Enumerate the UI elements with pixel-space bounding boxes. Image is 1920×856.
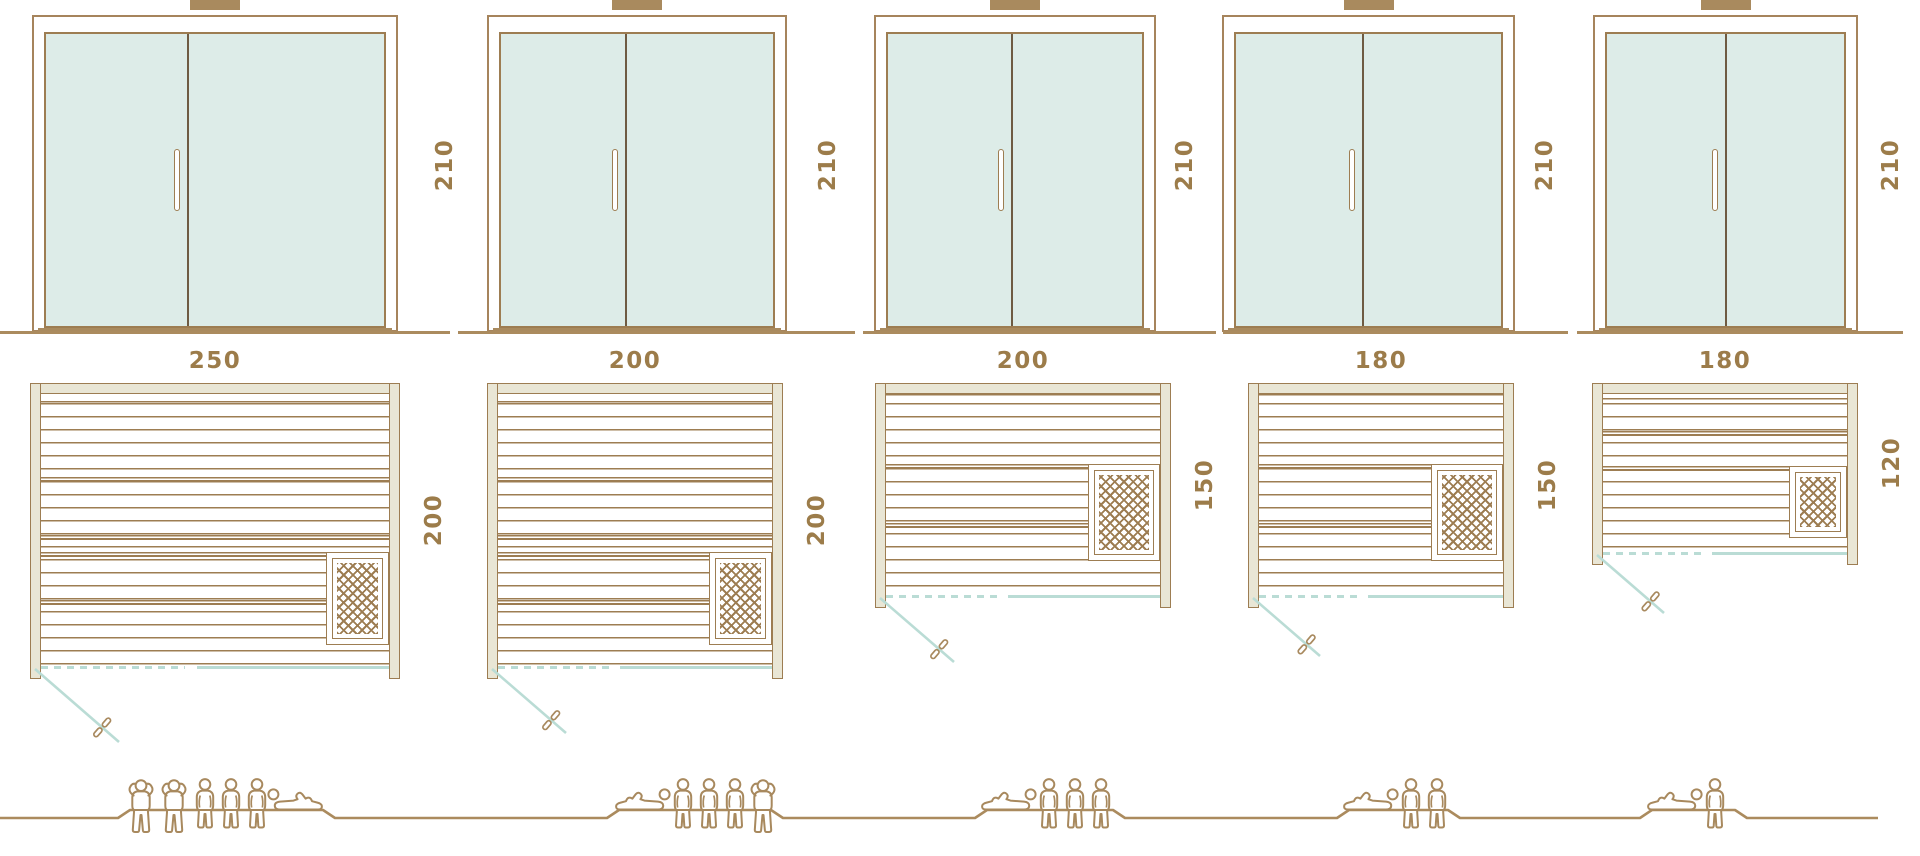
door-frame bbox=[874, 15, 1156, 332]
door-swing-line bbox=[35, 669, 119, 742]
plan-wall-left bbox=[875, 383, 886, 608]
person-sitting-icon bbox=[1707, 779, 1723, 827]
door-swing-line bbox=[1253, 598, 1320, 656]
person-standing-icon bbox=[163, 780, 186, 832]
plan-depth-label: 120 bbox=[1877, 413, 1907, 513]
bench-edge-line bbox=[41, 535, 389, 540]
capacity-ground-line bbox=[0, 810, 1878, 818]
person-sitting-icon bbox=[1041, 779, 1057, 827]
plan-width-label: 250 bbox=[165, 346, 265, 376]
door-handle bbox=[612, 149, 618, 211]
door-height-label: 210 bbox=[430, 115, 460, 215]
ground-line bbox=[1577, 331, 1903, 334]
door-glass bbox=[886, 32, 1144, 328]
ground-line bbox=[1223, 331, 1568, 334]
door-handle bbox=[1712, 149, 1718, 211]
plan-wall-top bbox=[1248, 383, 1514, 394]
person-sitting-icon bbox=[675, 779, 691, 827]
plan-wall-left bbox=[30, 383, 41, 679]
person-sitting-icon bbox=[1093, 779, 1109, 827]
plan-wall-left bbox=[1248, 383, 1259, 608]
plan-wall-right bbox=[1503, 383, 1514, 608]
ground-line bbox=[0, 331, 450, 334]
door-height-label: 210 bbox=[1530, 115, 1560, 215]
plan-width-label: 180 bbox=[1331, 346, 1431, 376]
floor-plan bbox=[30, 383, 400, 669]
heater bbox=[1789, 466, 1847, 538]
door-swing bbox=[869, 594, 1039, 714]
person-sitting-icon bbox=[1067, 779, 1083, 827]
door-height-label: 210 bbox=[1170, 115, 1200, 215]
person-sitting-icon bbox=[249, 779, 265, 827]
bench-edge-line bbox=[498, 477, 772, 482]
door-elevation bbox=[1222, 15, 1515, 332]
roof-vent bbox=[1344, 0, 1394, 10]
heater-frame bbox=[1795, 472, 1841, 532]
door-swing bbox=[1586, 551, 1756, 671]
door-swing-line bbox=[1597, 555, 1664, 613]
door-frame bbox=[487, 15, 787, 332]
bench-edge-line bbox=[498, 535, 772, 540]
ground-line bbox=[458, 331, 855, 334]
door-handle bbox=[174, 149, 180, 211]
roof-vent bbox=[612, 0, 662, 10]
heater bbox=[326, 552, 389, 645]
door-glass bbox=[44, 32, 386, 328]
plan-width-label: 200 bbox=[585, 346, 685, 376]
heater bbox=[1088, 464, 1160, 561]
heater-frame bbox=[1094, 470, 1154, 555]
plan-wall-top bbox=[875, 383, 1171, 394]
ground-line bbox=[863, 331, 1216, 334]
person-lying-icon bbox=[1648, 789, 1701, 809]
plan-wall-left bbox=[487, 383, 498, 679]
person-sitting-icon bbox=[1403, 779, 1419, 827]
plan-width-label: 180 bbox=[1675, 346, 1775, 376]
door-frame bbox=[32, 15, 398, 332]
capacity-figures bbox=[0, 756, 1920, 856]
person-lying-icon bbox=[616, 789, 669, 809]
door-swing-line bbox=[880, 598, 954, 662]
heater bbox=[1431, 464, 1503, 561]
door-glass bbox=[499, 32, 775, 328]
roof-vent bbox=[1701, 0, 1751, 10]
bench-edge-line bbox=[41, 477, 389, 482]
person-sitting-icon bbox=[1429, 779, 1445, 827]
plan-depth-label: 200 bbox=[802, 470, 832, 570]
heater bbox=[709, 552, 772, 645]
plan-wall-top bbox=[30, 383, 400, 394]
heater-frame bbox=[332, 558, 383, 639]
person-lying-icon bbox=[982, 789, 1035, 809]
plan-wall-left bbox=[1592, 383, 1603, 565]
person-sitting-icon bbox=[701, 779, 717, 827]
floor-plan bbox=[1592, 383, 1858, 555]
heater-frame bbox=[1437, 470, 1497, 555]
plan-wall-top bbox=[487, 383, 783, 394]
door-handle bbox=[998, 149, 1004, 211]
floor-plan bbox=[875, 383, 1171, 598]
door-divider bbox=[625, 34, 627, 326]
door-glass bbox=[1605, 32, 1846, 328]
person-sitting-icon bbox=[223, 779, 239, 827]
plan-wall-right bbox=[1847, 383, 1858, 565]
person-lying-icon bbox=[1344, 789, 1397, 809]
person-standing-icon bbox=[752, 780, 775, 832]
door-divider bbox=[1362, 34, 1364, 326]
plan-depth-label: 150 bbox=[1533, 435, 1563, 535]
heater-mesh bbox=[1800, 477, 1836, 527]
plan-wall-right bbox=[1160, 383, 1171, 608]
heater-mesh bbox=[720, 563, 761, 634]
person-lying-icon bbox=[268, 789, 321, 809]
heater-frame bbox=[715, 558, 766, 639]
heater-mesh bbox=[337, 563, 378, 634]
bench-edge-line bbox=[1603, 431, 1847, 436]
plan-depth-label: 200 bbox=[419, 470, 449, 570]
plan-wall-top bbox=[1592, 383, 1858, 394]
roof-vent bbox=[990, 0, 1040, 10]
plan-wall-right bbox=[389, 383, 400, 679]
door-divider bbox=[1011, 34, 1013, 326]
door-divider bbox=[1725, 34, 1727, 326]
door-elevation bbox=[487, 15, 787, 332]
glass-wall-line bbox=[197, 666, 389, 669]
door-divider bbox=[187, 34, 189, 326]
heater-mesh bbox=[1442, 475, 1492, 550]
plan-depth-label: 150 bbox=[1190, 435, 1220, 535]
plan-width-label: 200 bbox=[973, 346, 1073, 376]
door-height-label: 210 bbox=[1876, 115, 1906, 215]
floor-plan bbox=[1248, 383, 1514, 598]
door-elevation bbox=[32, 15, 398, 332]
door-frame bbox=[1593, 15, 1858, 332]
door-handle bbox=[1349, 149, 1355, 211]
door-glass bbox=[1234, 32, 1503, 328]
door-height-label: 210 bbox=[813, 115, 843, 215]
door-swing-line bbox=[492, 669, 566, 733]
plan-wall-right bbox=[772, 383, 783, 679]
person-sitting-icon bbox=[727, 779, 743, 827]
person-sitting-icon bbox=[197, 779, 213, 827]
door-elevation bbox=[874, 15, 1156, 332]
floor-plan bbox=[487, 383, 783, 669]
person-standing-icon bbox=[130, 780, 153, 832]
door-elevation bbox=[1593, 15, 1858, 332]
door-frame bbox=[1222, 15, 1515, 332]
sauna-size-comparison-diagram: 210 250 200 bbox=[0, 0, 1920, 856]
heater-mesh bbox=[1099, 475, 1149, 550]
roof-vent bbox=[190, 0, 240, 10]
door-swing bbox=[1242, 594, 1412, 714]
